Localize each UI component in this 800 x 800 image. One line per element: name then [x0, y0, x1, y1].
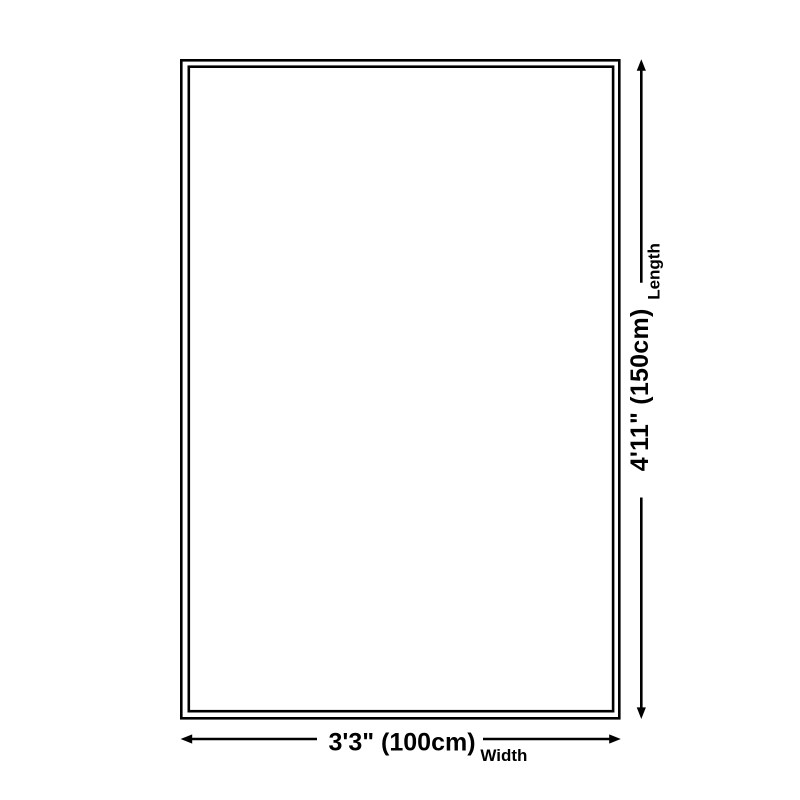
svg-text:Width: Width: [480, 746, 527, 765]
svg-text:4'11" (150cm): 4'11" (150cm): [626, 308, 654, 471]
svg-text:3'3" (100cm): 3'3" (100cm): [329, 729, 476, 757]
svg-text:Length: Length: [645, 243, 664, 300]
